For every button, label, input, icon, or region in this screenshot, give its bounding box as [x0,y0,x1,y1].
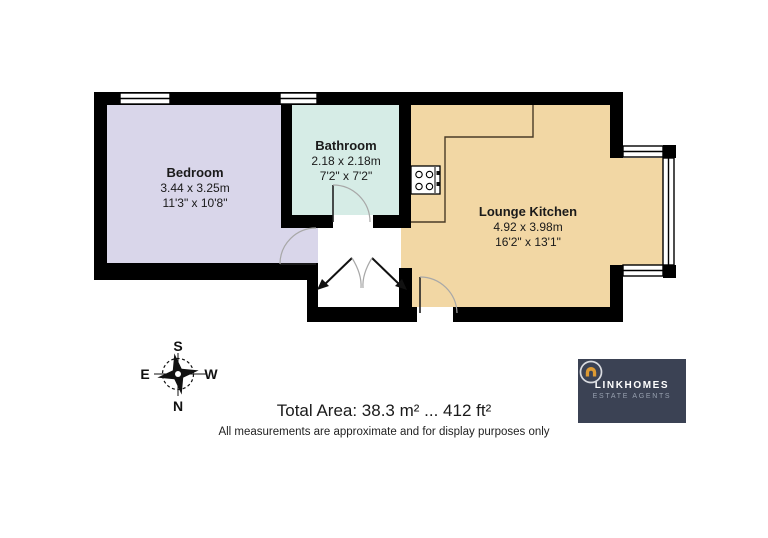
bay-window-floor [623,158,663,265]
bay-window-bottom [623,265,663,276]
bay-window-top [623,146,663,157]
bathroom-window [280,93,317,104]
wall-bathroom-kitchen [399,92,411,228]
compass-west: W [204,366,218,382]
wall-bay-post-top [663,145,676,158]
bedroom-dims-imperial: 11'3" x 10'8" [163,196,228,210]
wall-bathroom-bottom-left [281,215,333,228]
wall-bay-post-bottom [663,265,676,278]
wall-lounge-right-upper [610,92,623,158]
linkhomes-arch-icon [578,359,604,385]
lounge-kitchen-dims-imperial: 16'2" x 13'1" [495,235,561,249]
wall-top [94,92,623,105]
bathroom-dims-imperial: 7'2" x 7'2" [320,169,372,183]
entrance-double-door [317,258,407,290]
compass-south: S [173,338,182,354]
compass-east: E [140,366,149,382]
linkhomes-logo: LINKHOMES ESTATE AGENTS [578,359,686,423]
wall-bedroom-bathroom [281,92,292,228]
logo-name: LINKHOMES [595,380,669,392]
floorplan-page: Bedroom 3.44 x 3.25m 11'3" x 10'8" Bathr… [0,0,768,538]
bathroom-label: Bathroom [315,138,376,153]
logo-tagline: ESTATE AGENTS [593,393,672,401]
bathroom-dims-metric: 2.18 x 2.18m [311,154,380,168]
disclaimer-text: All measurements are approximate and for… [0,426,768,438]
wall-bedroom-bottom [94,263,318,280]
bay-window-right [663,158,674,265]
bedroom-window [120,93,170,104]
lounge-kitchen-dims-metric: 4.92 x 3.98m [493,220,562,234]
floor-plan: Bedroom 3.44 x 3.25m 11'3" x 10'8" Bathr… [0,0,768,538]
lounge-kitchen-label: Lounge Kitchen [479,204,577,219]
hob-icon [411,166,440,194]
wall-lounge-bottom [453,307,623,322]
wall-lounge-right-lower [610,265,623,322]
wall-left [94,92,107,280]
bedroom-label: Bedroom [166,165,223,180]
wall-vestibule-bottom [307,307,417,322]
bedroom-dims-metric: 3.44 x 3.25m [160,181,229,195]
